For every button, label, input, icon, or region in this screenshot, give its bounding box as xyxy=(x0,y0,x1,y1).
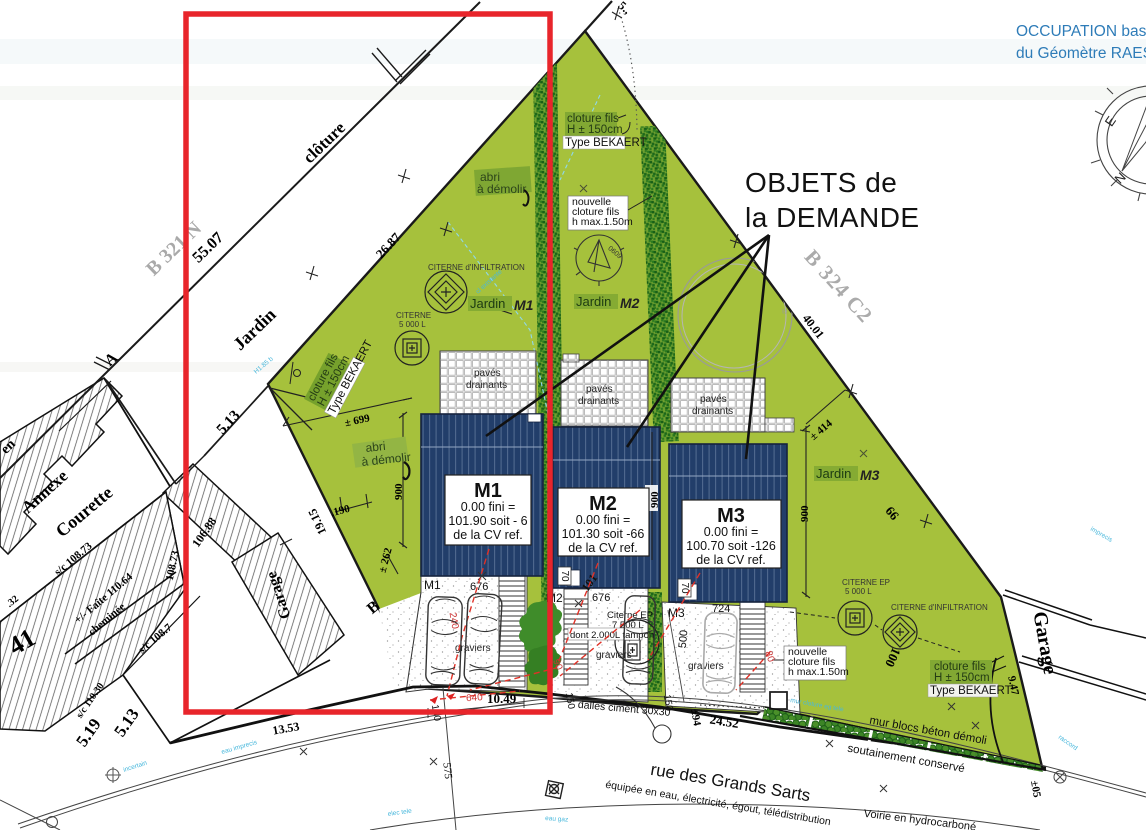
svg-text:0.00 fini =: 0.00 fini = xyxy=(461,500,516,514)
svg-text:OBJETS de: OBJETS de xyxy=(745,167,897,198)
svg-text:M3: M3 xyxy=(668,606,685,620)
svg-text:100.70 soit -126: 100.70 soit -126 xyxy=(686,539,776,553)
svg-text:101.90 soit - 6: 101.90 soit - 6 xyxy=(448,514,527,528)
svg-text:M3: M3 xyxy=(717,505,745,527)
svg-text:drainants: drainants xyxy=(466,380,507,391)
svg-text:dont 2.000L tampon: dont 2.000L tampon xyxy=(570,630,654,641)
svg-text:drainants: drainants xyxy=(692,406,733,417)
svg-text:h max.1.50m: h max.1.50m xyxy=(572,216,633,228)
svg-text:Type BEKAERT: Type BEKAERT xyxy=(565,137,647,149)
svg-text:pavés: pavés xyxy=(474,368,501,379)
svg-text:M1: M1 xyxy=(474,480,502,502)
svg-text:la DEMANDE: la DEMANDE xyxy=(745,202,920,233)
svg-text:5 000 L: 5 000 L xyxy=(845,587,872,596)
svg-text:640: 640 xyxy=(466,692,484,704)
svg-text:CITERNE d'INFILTRATION: CITERNE d'INFILTRATION xyxy=(891,603,988,612)
svg-text:0.00 fini =: 0.00 fini = xyxy=(576,513,631,527)
svg-text:graviers: graviers xyxy=(596,650,632,661)
svg-text:Jardin: Jardin xyxy=(816,466,851,481)
svg-text:500: 500 xyxy=(677,629,691,648)
svg-text:676: 676 xyxy=(592,592,610,604)
svg-text:575: 575 xyxy=(440,762,454,780)
svg-text:drainants: drainants xyxy=(578,396,619,407)
svg-text:5 000 L: 5 000 L xyxy=(399,320,426,329)
svg-text:0.00 fini =: 0.00 fini = xyxy=(704,525,759,539)
svg-text:CITERNE d'INFILTRATION: CITERNE d'INFILTRATION xyxy=(428,263,525,272)
svg-text:h max.1.50m: h max.1.50m xyxy=(788,666,849,678)
svg-text:H ± 150cm: H ± 150cm xyxy=(934,672,990,684)
svg-text:graviers: graviers xyxy=(688,661,724,672)
svg-text:900: 900 xyxy=(649,491,661,508)
svg-text:du Géomètre RAES .: du Géomètre RAES . xyxy=(1016,45,1146,62)
svg-text:900: 900 xyxy=(393,483,405,500)
svg-text:à démolir: à démolir xyxy=(477,182,526,196)
svg-text:CITERNE EP: CITERNE EP xyxy=(842,578,890,587)
svg-text:M1: M1 xyxy=(424,578,441,592)
svg-text:de la CV ref.: de la CV ref. xyxy=(568,541,637,555)
svg-text:CITERNE: CITERNE xyxy=(396,311,431,320)
svg-text:70: 70 xyxy=(559,570,570,582)
svg-text:de la CV ref.: de la CV ref. xyxy=(696,553,765,567)
svg-text:Type BEKAERT: Type BEKAERT xyxy=(930,685,1012,697)
svg-text:M1: M1 xyxy=(514,297,534,313)
svg-text:Jardin: Jardin xyxy=(470,296,505,311)
svg-text:pavés: pavés xyxy=(586,384,613,395)
svg-text:OCCUPATION basée s: OCCUPATION basée s xyxy=(1016,23,1146,40)
svg-text:M3: M3 xyxy=(860,467,880,483)
svg-text:de la CV ref.: de la CV ref. xyxy=(453,528,522,542)
svg-text:Jardin: Jardin xyxy=(576,294,611,309)
svg-text:101.30 soit -66: 101.30 soit -66 xyxy=(562,527,645,541)
svg-text:900: 900 xyxy=(799,505,811,522)
svg-text:®: ® xyxy=(782,308,788,316)
svg-text:H ± 150cm: H ± 150cm xyxy=(567,124,623,136)
svg-text:pavés: pavés xyxy=(700,394,727,405)
svg-text:M2: M2 xyxy=(589,493,617,515)
svg-text:M2: M2 xyxy=(620,295,640,311)
